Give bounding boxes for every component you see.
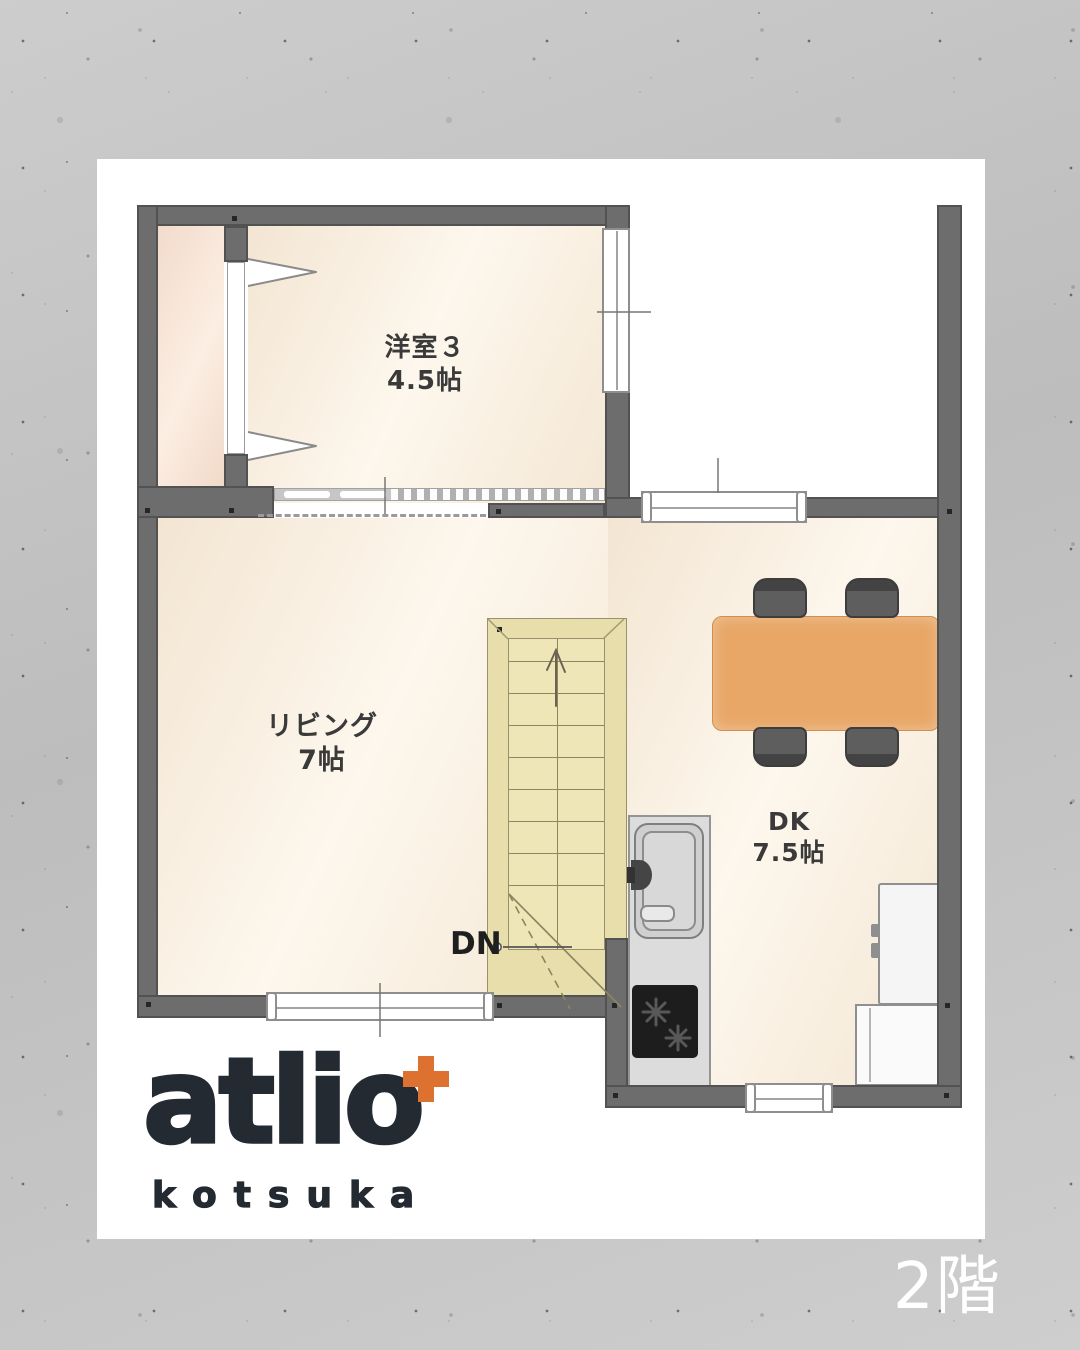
room-name: DK xyxy=(689,806,889,837)
wall-closet-partition-bottom xyxy=(224,454,248,488)
window-dk-top xyxy=(641,491,807,523)
stove xyxy=(632,985,698,1058)
room-size: 4.5帖 xyxy=(325,365,525,398)
wall-right xyxy=(937,205,962,1108)
chair xyxy=(845,727,899,767)
room-name: リビング xyxy=(222,710,422,744)
stair-center-line xyxy=(557,639,558,949)
wall-joint-dot xyxy=(944,1093,949,1098)
sliding-door-swing-line xyxy=(258,514,486,517)
room-label-western3: 洋室３ 4.5帖 xyxy=(325,332,525,397)
chair xyxy=(845,578,899,618)
room-label-living: リビング 7帖 xyxy=(222,710,422,778)
window-cap xyxy=(483,992,494,1021)
wall-joint-dot xyxy=(947,509,952,514)
kitchen-cabinet xyxy=(855,1004,939,1086)
sliding-door-panel xyxy=(340,491,386,498)
sink-handle xyxy=(640,905,675,922)
wall-joint-dot xyxy=(612,1003,617,1008)
wall-stair-kitchen xyxy=(605,938,628,1088)
room-size: 7.5帖 xyxy=(689,837,889,868)
floor-badge: 2階 xyxy=(893,1252,1002,1322)
closet-door xyxy=(227,262,245,454)
wall-joint-dot xyxy=(613,1093,618,1098)
cabinet-door-line xyxy=(869,1008,871,1082)
window-cap xyxy=(641,491,652,523)
wall-joint-dot xyxy=(497,627,502,632)
chair xyxy=(753,727,807,767)
refrigerator-handle xyxy=(871,943,880,958)
wall-joint-dot xyxy=(945,1003,950,1008)
wall-closet-partition-top xyxy=(224,226,248,262)
refrigerator-handle xyxy=(871,924,880,937)
wall-left xyxy=(137,205,158,1018)
window-cap xyxy=(266,992,277,1021)
room-size: 7帖 xyxy=(222,744,422,778)
chair xyxy=(753,578,807,618)
sliding-door-panel xyxy=(284,491,330,498)
window-western3-right xyxy=(602,228,630,393)
wall-joint-dot xyxy=(232,216,237,221)
room-name: 洋室３ xyxy=(325,332,525,365)
wall-mid-left xyxy=(137,486,274,518)
brand-logo-text: atlio xyxy=(143,1042,421,1160)
logo-plus-icon xyxy=(403,1056,449,1102)
wall-joint-dot xyxy=(146,1002,151,1007)
stair-down-label: DN xyxy=(450,926,502,962)
wall-joint-dot xyxy=(497,1003,502,1008)
wall-joint-dot xyxy=(229,508,234,513)
wall-joint-dot xyxy=(496,509,501,514)
wall-joint-dot xyxy=(145,508,150,513)
room-label-dk: DK 7.5帖 xyxy=(689,806,889,869)
faucet-base xyxy=(627,867,635,883)
brand-logo-subtext: kotsuka xyxy=(152,1178,431,1214)
window-cap xyxy=(745,1083,756,1113)
window-cap xyxy=(796,491,807,523)
wall-top xyxy=(137,205,630,226)
refrigerator xyxy=(878,883,944,1005)
wall-under-track xyxy=(488,503,605,518)
sliding-door-rail-dots xyxy=(391,489,604,500)
closet-floor xyxy=(158,226,224,488)
window-dk-bottom xyxy=(745,1083,833,1113)
dining-table xyxy=(712,616,940,731)
window-living-bottom xyxy=(266,992,494,1021)
window-cap xyxy=(822,1083,833,1113)
staircase-treads xyxy=(508,638,605,950)
